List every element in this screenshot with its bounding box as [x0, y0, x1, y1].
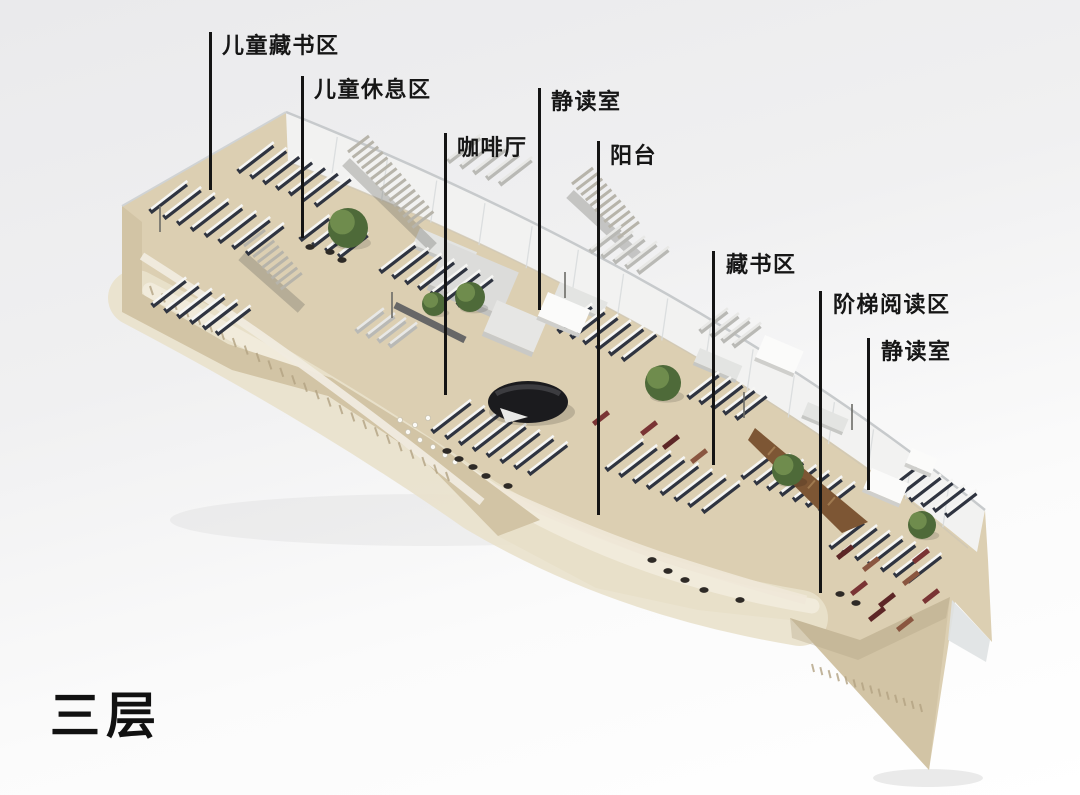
leader-line-stepped-reading	[819, 291, 822, 593]
label-children-lounge: 儿童休息区	[314, 72, 432, 104]
label-quiet-reading-left: 静读室	[551, 84, 622, 116]
label-cafe: 咖啡厅	[457, 130, 528, 162]
leader-line-quiet-reading-left	[538, 88, 541, 310]
leader-line-cafe	[444, 133, 447, 395]
label-balcony: 阳台	[610, 138, 657, 170]
label-quiet-reading-right: 静读室	[881, 334, 952, 366]
label-children-stacks: 儿童藏书区	[222, 28, 340, 60]
leader-line-quiet-reading-right	[867, 338, 870, 490]
label-stacks: 藏书区	[726, 247, 797, 279]
leader-line-children-stacks	[209, 32, 212, 190]
diagram-canvas: 儿童藏书区 儿童休息区 咖啡厅 静读室 阳台 藏书区 阶梯阅读区 静读室 三层	[0, 0, 1080, 795]
leader-line-children-lounge	[301, 76, 304, 238]
leader-line-stacks	[712, 251, 715, 465]
floor-title: 三层	[50, 676, 162, 748]
label-stepped-reading: 阶梯阅读区	[833, 287, 951, 319]
leader-line-balcony	[597, 141, 600, 515]
